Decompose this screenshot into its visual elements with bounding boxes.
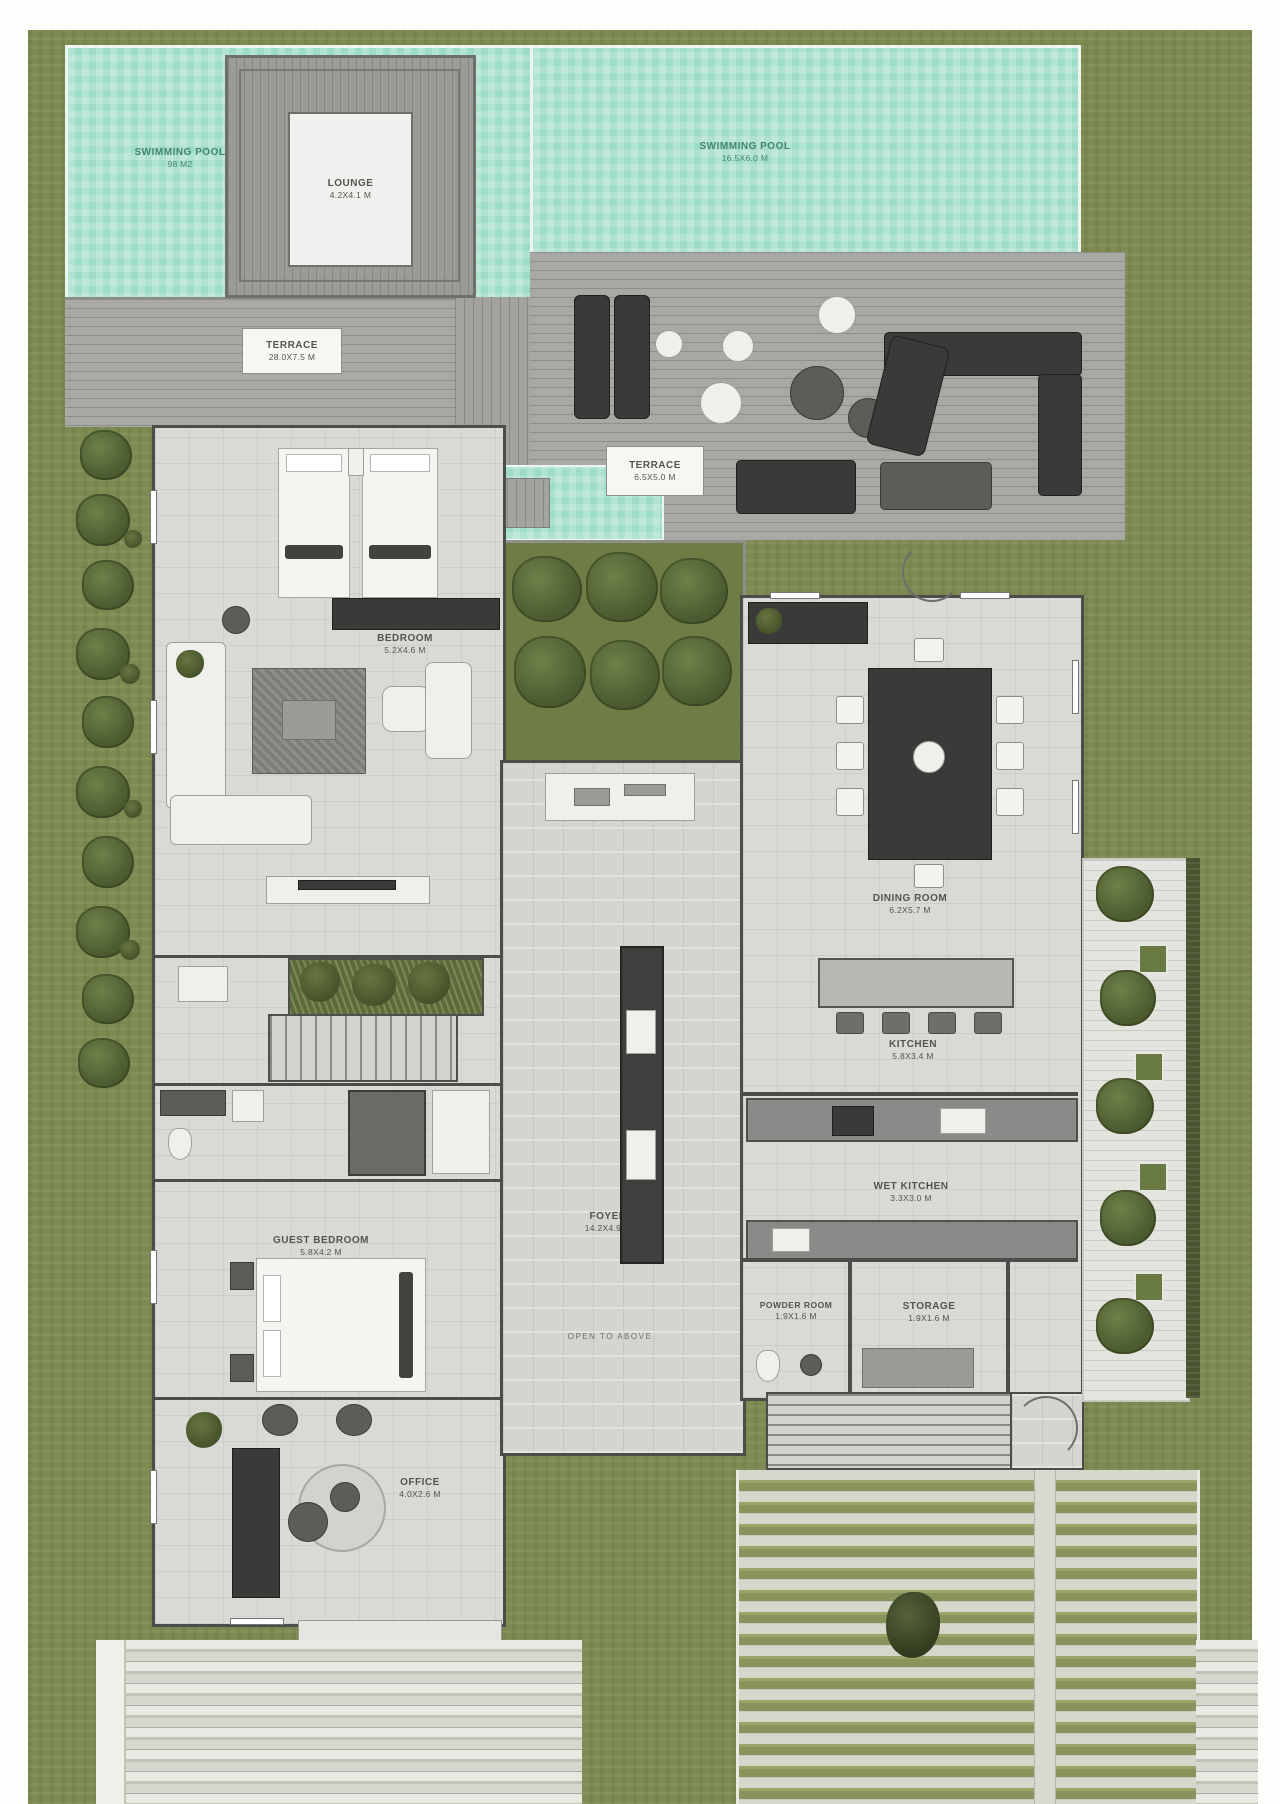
cooktop [832,1106,874,1136]
outdoor-sofa [1038,374,1082,496]
washer [232,1090,264,1122]
bed [278,448,350,598]
kitchen-island [818,958,1014,1008]
terrace-chair [722,330,754,362]
dining-table [868,668,992,860]
tree [76,494,130,546]
closet [432,1090,490,1174]
pillow [370,454,429,472]
lounge-label-dims: 4.2x4.1 m [328,190,374,201]
sun-lounger [574,295,610,419]
armchair [382,686,430,732]
coffee-table [282,700,336,740]
tree [514,636,586,708]
kitchen-label: KITCHEN 5.8x3.4 m [838,1038,988,1062]
chaise-lounge [425,662,472,759]
nightstand [230,1262,254,1290]
side-table [655,330,683,358]
storage-label-text: STORAGE [856,1300,1002,1313]
pouf [222,606,250,634]
tree [586,552,658,622]
driveway-divider [1034,1470,1056,1804]
dining-chair [914,638,944,662]
terrace-left-label-text: TERRACE [266,339,318,352]
tree [1100,970,1156,1026]
bar-stool [974,1012,1002,1034]
pool-left-label: SWIMMING POOL 98 m2 [90,146,270,170]
wall [848,1258,852,1395]
window [960,592,1010,599]
pool-left-label-text: SWIMMING POOL [90,146,270,159]
tree [1100,1190,1156,1246]
sink [940,1108,986,1134]
toilet [168,1128,192,1160]
dining-chair [836,696,864,724]
foyer-label-dims: 14.2x4.9 m [528,1223,688,1234]
entry-mat [545,773,695,821]
tree [662,636,732,706]
bar-stool [882,1012,910,1034]
paving-strip [1196,1640,1258,1804]
toilet [756,1350,780,1382]
patio-paving [96,1640,582,1804]
bar-stool [928,1012,956,1034]
shower [348,1090,426,1176]
guest-bedroom-label-dims: 5.8x4.2 m [226,1247,416,1258]
terrace-left-label-dims: 28.0x7.5 m [266,352,318,363]
tree [80,430,132,480]
window [150,1470,157,1524]
sofa [170,795,312,845]
lounge-room: LOUNGE 4.2x4.1 m [288,112,413,267]
wet-kitchen-label-dims: 3.3x3.0 m [836,1193,986,1204]
dining-chair [996,788,1024,816]
storage-shelf [862,1348,974,1388]
entry-mat-motif [624,784,666,796]
driveway [736,1470,1200,1804]
storage-label-dims: 1.9x1.6 m [856,1313,1002,1324]
dining-chair [836,742,864,770]
terrace-left-plaque: TERRACE 28.0x7.5 m [242,328,342,374]
lounge-label-text: LOUNGE [328,177,374,190]
wall [740,1258,1078,1262]
wall [1006,1258,1010,1395]
coffee-table [790,366,844,420]
kitchen-counter [746,1098,1078,1142]
bedroom-label-text: BEDROOM [330,632,480,645]
pool-left-label-dims: 98 m2 [90,159,270,170]
outdoor-bench [736,460,856,514]
wet-kitchen-label-text: WET KITCHEN [836,1180,986,1193]
planter-box [1134,1052,1164,1082]
guest-bedroom-label: GUEST BEDROOM 5.8x4.2 m [226,1234,416,1258]
pool-right-label-dims: 16.5x6.0 m [655,153,835,164]
planter-box [1138,944,1168,974]
foyer-note: OPEN TO ABOVE [540,1332,680,1341]
planter-box [1138,1162,1168,1192]
fridge [626,1010,656,1054]
tree [82,696,134,748]
kitchen-label-dims: 5.8x3.4 m [838,1051,988,1062]
bedroom-label-dims: 5.2x4.6 m [330,645,480,656]
terrace-right-label: TERRACE 6.5x5.0 m [629,459,681,483]
foyer-label-text: FOYER [528,1210,688,1223]
window [770,592,820,599]
lounge-label: LOUNGE 4.2x4.1 m [328,177,374,201]
staircase-up [268,1014,458,1082]
dining-chair [836,788,864,816]
window [1072,780,1079,834]
pillow [286,454,342,472]
terrace-right-label-dims: 6.5x5.0 m [629,472,681,483]
storage-label: STORAGE 1.9x1.6 m [856,1300,1002,1324]
window [150,1250,157,1304]
window [150,700,157,754]
dining-chair [914,864,944,888]
floor-plan: LOUNGE 4.2x4.1 m SWIMMING POOL 98 m2 SWI… [0,0,1280,1804]
dining-chair [996,696,1024,724]
tree [76,766,130,818]
powder-room-label: POWDER ROOM 1.9x1.6 m [744,1300,848,1322]
visitor-stool [262,1404,298,1436]
entry-door-swing-arc [1014,1396,1078,1460]
pillow [263,1275,281,1322]
pillow [263,1330,281,1377]
kitchen-tall-cabinets [620,946,664,1264]
terrace-table [700,382,742,424]
tree [82,974,134,1024]
tree [590,640,660,710]
terrace-right-label-text: TERRACE [629,459,681,472]
wall [740,1092,1078,1096]
desk-chair [288,1502,328,1542]
pool-right-label: SWIMMING POOL 16.5x6.0 m [655,140,835,164]
bedroom-label: BEDROOM 5.2x4.6 m [330,632,480,656]
window [1072,660,1079,714]
outdoor-daybed [880,462,992,510]
bed-throw [399,1272,413,1378]
tree [1096,866,1154,922]
window [230,1618,284,1625]
tv [298,880,396,890]
centerpiece [913,741,945,773]
sink [800,1354,822,1376]
desk [232,1448,280,1598]
powder-room-label-text: POWDER ROOM [744,1300,848,1311]
tree [82,836,134,888]
dresser [332,598,500,630]
bed-throw [369,545,431,559]
guest-bedroom-label-text: GUEST BEDROOM [226,1234,416,1247]
paving-edge [96,1640,126,1804]
bed-throw [285,545,344,559]
kitchen-counter [746,1220,1078,1260]
wet-kitchen-label: WET KITCHEN 3.3x3.0 m [836,1180,986,1204]
dining-room-label-text: DINING ROOM [838,892,982,905]
planter-box [1134,1272,1164,1302]
tree [78,1038,130,1088]
kitchen-label-text: KITCHEN [838,1038,988,1051]
guest-bed [256,1258,426,1392]
stool [330,1482,360,1512]
foyer-label: FOYER 14.2x4.9 m [528,1210,688,1234]
vanity [160,1090,226,1116]
bar-stool [836,1012,864,1034]
tree [1096,1078,1154,1134]
nightstand [348,448,364,476]
dining-chair [996,742,1024,770]
staircase-down [766,1392,1014,1470]
powder-room-label-dims: 1.9x1.6 m [744,1311,848,1322]
dishwasher [772,1228,810,1252]
terrace-right-plaque: TERRACE 6.5x5.0 m [606,446,704,496]
visitor-stool [336,1404,372,1436]
entry-mat-motif [574,788,610,806]
oven [626,1130,656,1180]
pool-right-label-text: SWIMMING POOL [655,140,835,153]
door-swing-arc [902,542,962,602]
tree [512,556,582,622]
dining-room-label-dims: 6.2x5.7 m [838,905,982,916]
nightstand [230,1354,254,1382]
tree [660,558,728,624]
window [150,490,157,544]
hall-cabinet [178,966,228,1002]
sun-lounger [614,295,650,419]
terrace-chair [818,296,856,334]
bed [362,448,438,598]
tree [82,560,134,610]
tree [1096,1298,1154,1354]
hedge [1186,858,1200,1398]
terrace-left-label: TERRACE 28.0x7.5 m [266,339,318,363]
dining-room-label: DINING ROOM 6.2x5.7 m [838,892,982,916]
